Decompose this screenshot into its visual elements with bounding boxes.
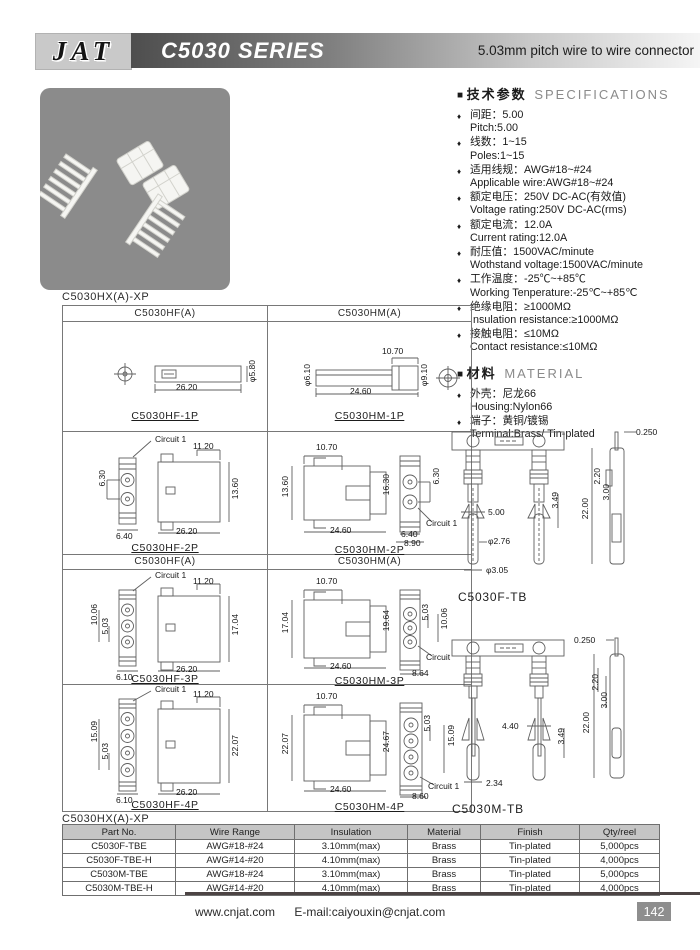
dimension-label: φ3.05 [486, 565, 508, 575]
square-bullet-icon: ■ [457, 90, 463, 101]
dimension-label: 10.70 [382, 346, 403, 356]
dimension-label: 8.60 [412, 791, 429, 801]
dimension-label: 22.00 [580, 498, 590, 519]
table-header-cell: Wire Range [176, 825, 295, 840]
table-header-cell: Qty/reel [580, 825, 660, 840]
dimension-label: φ5.80 [247, 360, 257, 382]
footer-website: www.cnjat.com [195, 905, 275, 919]
dimension-label: 3.00 [599, 692, 609, 709]
footer: www.cnjat.com E-mail:caiyouxin@cnjat.com [195, 905, 461, 919]
specs-heading: ■ 技术参数 SPECIFICATIONS [457, 84, 700, 103]
column-header-hm: C5030HM(A) [268, 306, 471, 321]
dimension-label: 10.06 [89, 604, 99, 625]
dimension-label: 24.60 [330, 661, 351, 671]
material-heading: ■ 材料 MATERIAL [457, 363, 700, 382]
jat-logo-text: JAT [53, 36, 115, 67]
dimension-label: 13.60 [230, 478, 240, 499]
dimension-label: 16.30 [381, 474, 391, 495]
dimension-label: 5.03 [422, 715, 432, 732]
table-cell: Brass [408, 854, 481, 868]
drawing-cell-hf2p: Circuit 1 11.20 6.30 6.40 13.60 26.20 C5… [63, 432, 267, 554]
table-cell: AWG#14-#20 [176, 854, 295, 868]
table-row: C5030M-TBEAWG#18-#243.10mm(max)BrassTin-… [63, 868, 660, 882]
footer-email: E-mail:caiyouxin@cnjat.com [294, 905, 445, 919]
specs-heading-en: SPECIFICATIONS [534, 87, 669, 102]
drawing-cell-hf4p: Circuit 1 11.20 15.09 5.03 6.10 22.07 26… [63, 685, 267, 811]
spec-item: ♦绝缘电阻：≥1000MΩInsulation resistance:≥1000… [457, 301, 700, 327]
table-cell: AWG#18-#24 [176, 840, 295, 854]
table-header-cell: Finish [481, 825, 580, 840]
dimension-label: 11.20 [193, 441, 214, 451]
dimension-label: 5.00 [488, 507, 505, 517]
dimension-label: 19.64 [381, 610, 391, 631]
dimension-label: 0.250 [636, 427, 657, 437]
parts-table: Part No. Wire Range Insulation Material … [62, 824, 660, 896]
dimension-label: 22.07 [230, 735, 240, 756]
specs-list: ♦间距：5.00Pitch:5.00 ♦线数：1~15Poles:1~15 ♦适… [457, 109, 700, 355]
table-cell: Tin-plated [481, 854, 580, 868]
dimension-label: 15.09 [89, 721, 99, 742]
dimension-label: 5.03 [100, 743, 110, 760]
table-row: C5030F-TBE-HAWG#14-#204.10mm(max)BrassTi… [63, 854, 660, 868]
spec-item: ♦接触电阻：≤10MΩContact resistance:≤10MΩ [457, 328, 700, 354]
dimension-label: 17.04 [280, 612, 290, 633]
circuit-label: Circuit 1 [155, 684, 186, 694]
table-cell: C5030M-TBE-H [63, 882, 176, 896]
table-header-cell: Material [408, 825, 481, 840]
terminal-label-m-tb: C5030M-TB [452, 802, 524, 816]
dimension-label: 22.00 [581, 712, 591, 733]
dimension-label: 3.00 [601, 484, 611, 501]
dimension-label: 0.250 [574, 635, 595, 645]
table-header-cell: Insulation [295, 825, 408, 840]
table-cell: C5030F-TBE-H [63, 854, 176, 868]
table-cell: 3.10mm(max) [295, 868, 408, 882]
dimension-label: 26.20 [176, 787, 197, 797]
dimension-label: 6.40 [116, 531, 133, 541]
material-item: ♦外壳：尼龙66Housing:Nylon66 [457, 388, 700, 414]
part-label: C5030HF-2P [63, 542, 267, 554]
table-cell: C5030M-TBE [63, 868, 176, 882]
dimension-label: 3.49 [556, 728, 566, 745]
table-cell: 4.10mm(max) [295, 854, 408, 868]
table-cell: Brass [408, 868, 481, 882]
terminal-drawing-f-tb: 0.250 5.00 φ2.76 φ3.05 3.49 22.00 2.20 3… [440, 418, 700, 590]
dimension-label: 4.40 [502, 721, 519, 731]
table-header-row: Part No. Wire Range Insulation Material … [63, 825, 660, 840]
grid-label-top: C5030HX(A)-XP [62, 291, 149, 303]
dimension-label: 24.60 [330, 784, 351, 794]
table-cell: AWG#18-#24 [176, 868, 295, 882]
drawings-grid: C5030HF(A) C5030HM(A) C5030HF(A) C5030HM… [62, 305, 472, 812]
dimension-label: 13.60 [280, 476, 290, 497]
dimension-label: 17.04 [230, 614, 240, 635]
dimension-label: 2.34 [486, 778, 503, 788]
product-photo [40, 88, 230, 290]
header-subtitle: 5.03mm pitch wire to wire connector [478, 43, 694, 58]
column-header-hf: C5030HF(A) [63, 306, 267, 321]
dimension-label: 5.03 [420, 604, 430, 621]
spec-item: ♦间距：5.00Pitch:5.00 [457, 109, 700, 135]
m-tb-drawing [440, 628, 700, 803]
page-number: 142 [637, 902, 671, 921]
specs-section: ■ 技术参数 SPECIFICATIONS ♦间距：5.00Pitch:5.00… [457, 84, 700, 442]
part-label: C5030HF-4P [63, 799, 267, 811]
spec-item: ♦线数：1~15Poles:1~15 [457, 136, 700, 162]
table-cell: 4,000pcs [580, 854, 660, 868]
dimension-label: 11.20 [193, 689, 214, 699]
spec-item: ♦额定电流：12.0ACurrent rating:12.0A [457, 219, 700, 245]
header-band: C5030 SERIES 5.03mm pitch wire to wire c… [131, 33, 700, 68]
table-cell: Tin-plated [481, 840, 580, 854]
part-label: C5030HF-1P [63, 410, 267, 422]
dimension-label: 3.49 [550, 492, 560, 509]
table-cell: C5030F-TBE [63, 840, 176, 854]
hf1p-drawing [63, 322, 267, 408]
dimension-label: 24.60 [330, 525, 351, 535]
f-tb-drawing [440, 418, 700, 590]
dimension-label: 6.30 [97, 470, 107, 487]
connector-photo-illustration [40, 88, 230, 290]
dimension-label: 24.67 [381, 731, 391, 752]
table-cell: Brass [408, 840, 481, 854]
spec-item: ♦工作温度：-25℃~+85℃Working Tenperature:-25℃~… [457, 273, 700, 299]
dimension-label: 22.07 [280, 733, 290, 754]
dimension-label: 2.20 [590, 674, 600, 691]
footer-divider-bar [185, 892, 700, 895]
table-cell: 3.10mm(max) [295, 840, 408, 854]
dimension-label: 10.06 [439, 608, 449, 629]
table-cell: Tin-plated [481, 868, 580, 882]
drawing-cell-hf1p: 26.20 φ5.80 C5030HF-1P [63, 322, 267, 431]
drawing-cell-hm1p: 10.70 φ6.10 φ9.10 24.60 C5030HM-1P [268, 322, 471, 431]
circuit-label: Circuit 1 [155, 570, 186, 580]
spec-item: ♦适用线规：AWG#18~#24Applicable wire:AWG#18~#… [457, 164, 700, 190]
material-heading-en: MATERIAL [504, 366, 584, 381]
datasheet-page: JAT C5030 SERIES 5.03mm pitch wire to wi… [0, 0, 700, 950]
terminal-drawing-m-tb: 0.250 4.40 3.49 2.20 3.00 22.00 2.34 [440, 628, 700, 803]
spec-item: ♦额定电压：250V DC-AC(有效值)Voltage rating:250V… [457, 191, 700, 217]
dimension-label: φ9.10 [419, 364, 429, 386]
table-header-cell: Part No. [63, 825, 176, 840]
table-cell: 5,000pcs [580, 868, 660, 882]
dimension-label: 24.60 [350, 386, 371, 396]
dimension-label: 5.03 [100, 618, 110, 635]
dimension-label: 10.70 [316, 442, 337, 452]
dimension-label: 26.20 [176, 526, 197, 536]
terminal-label-f-tb: C5030F-TB [458, 590, 527, 604]
column-header-hf: C5030HF(A) [63, 554, 267, 569]
dimension-label: 10.70 [316, 576, 337, 586]
specs-heading-cn: 技术参数 [467, 87, 527, 102]
dimension-label: 11.20 [193, 576, 214, 586]
drawing-cell-hf3p: Circuit 1 11.20 10.06 5.03 6.10 17.04 26… [63, 570, 267, 684]
table-row: C5030F-TBEAWG#18-#243.10mm(max)BrassTin-… [63, 840, 660, 854]
circuit-label: Circuit 1 [155, 434, 186, 444]
dimension-label: 10.70 [316, 691, 337, 701]
table-cell: 5,000pcs [580, 840, 660, 854]
series-title: C5030 SERIES [161, 38, 325, 64]
spec-item: ♦耐压值：1500VAC/minuteWothstand voltage:150… [457, 246, 700, 272]
dimension-label: φ6.10 [302, 364, 312, 386]
dimension-label: φ2.76 [488, 536, 510, 546]
dimension-label: 2.20 [592, 468, 602, 485]
jat-logo: JAT [35, 33, 132, 70]
dimension-label: 26.20 [176, 382, 197, 392]
